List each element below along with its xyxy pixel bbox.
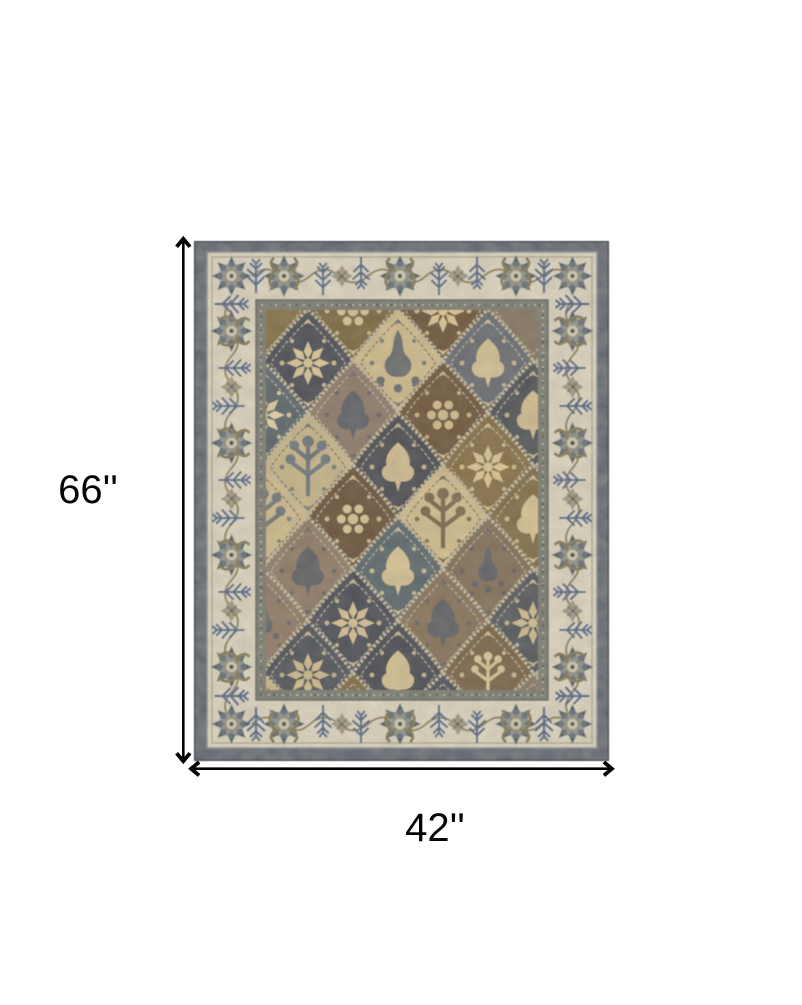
svg-text:66'': 66'' [58, 468, 118, 512]
svg-text:42'': 42'' [405, 806, 465, 850]
